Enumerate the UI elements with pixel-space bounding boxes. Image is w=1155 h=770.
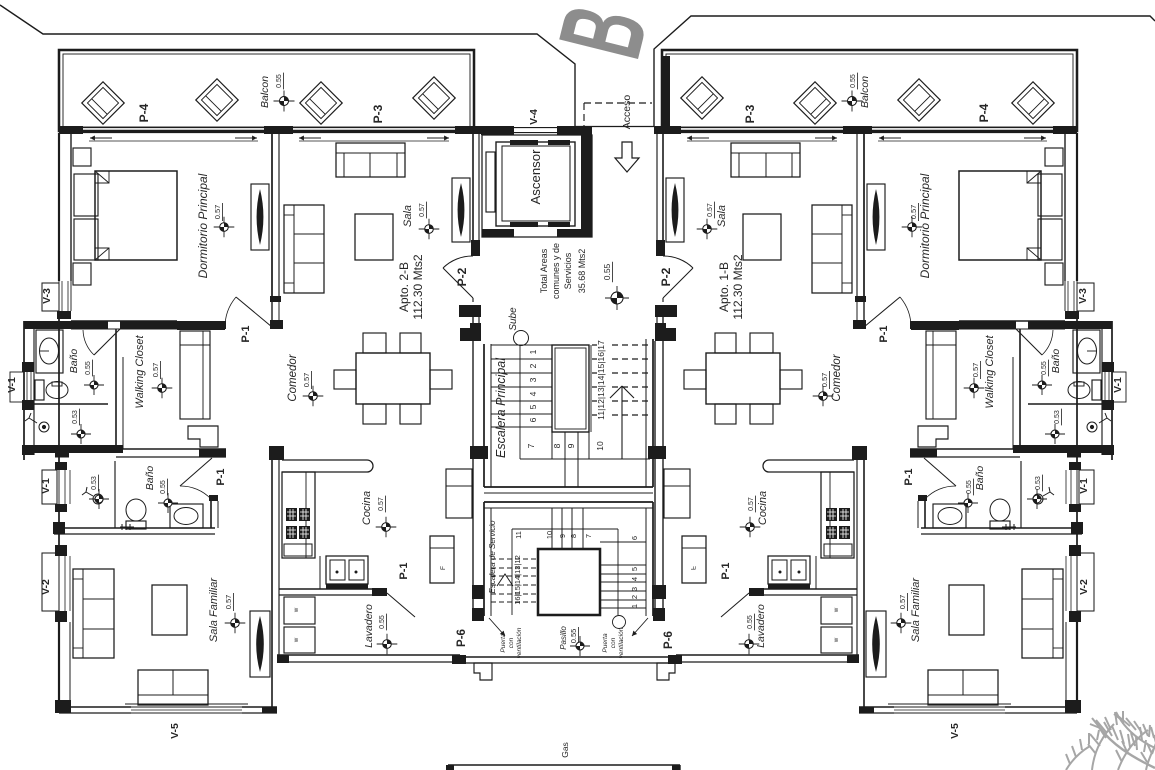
- svg-text:P-6: P-6: [456, 629, 468, 647]
- svg-text:0.55: 0.55: [569, 629, 578, 644]
- svg-text:V-3: V-3: [1077, 288, 1089, 304]
- svg-text:F: F: [440, 566, 447, 570]
- svg-text:7: 7: [584, 534, 593, 538]
- svg-text:P-3: P-3: [371, 104, 385, 123]
- svg-text:0.57: 0.57: [378, 497, 385, 511]
- svg-text:0.55: 0.55: [160, 480, 167, 494]
- svg-text:Dormitorio Principal: Dormitorio Principal: [918, 173, 932, 278]
- svg-text:0.55: 0.55: [747, 615, 754, 629]
- svg-text:V-5: V-5: [949, 723, 961, 739]
- svg-text:Balcon: Balcon: [259, 76, 271, 108]
- svg-text:11|12|13|14|15|16|17: 11|12|13|14|15|16|17: [596, 340, 606, 420]
- svg-text:w: w: [294, 637, 300, 643]
- svg-text:112.30 Mts2: 112.30 Mts2: [731, 254, 745, 319]
- svg-text:1: 1: [630, 604, 639, 608]
- svg-text:0.55: 0.55: [850, 74, 857, 88]
- svg-text:V-1: V-1: [40, 478, 52, 494]
- svg-text:Lavadero: Lavadero: [755, 604, 767, 648]
- svg-text:V-2: V-2: [40, 579, 52, 595]
- svg-text:V-3: V-3: [41, 288, 53, 304]
- svg-text:P-3: P-3: [743, 104, 757, 123]
- svg-text:Walking Closet: Walking Closet: [984, 334, 996, 408]
- svg-text:10: 10: [545, 531, 554, 539]
- svg-text:0.57: 0.57: [748, 497, 755, 511]
- svg-text:4: 4: [528, 391, 538, 396]
- svg-text:10: 10: [595, 441, 605, 451]
- svg-text:Comedor: Comedor: [831, 353, 843, 401]
- svg-text:V-4: V-4: [528, 109, 540, 125]
- svg-text:8: 8: [552, 443, 562, 448]
- svg-text:Puerta: Puerta: [602, 633, 609, 653]
- svg-text:5: 5: [528, 404, 538, 409]
- svg-text:w: w: [294, 607, 300, 613]
- svg-text:0.53: 0.53: [1035, 476, 1042, 490]
- svg-text:0.57: 0.57: [971, 363, 980, 378]
- svg-text:16|15|14|13|12: 16|15|14|13|12: [513, 555, 522, 605]
- svg-text:0.55: 0.55: [276, 74, 283, 88]
- svg-text:5: 5: [630, 567, 639, 571]
- svg-text:4: 4: [630, 577, 639, 581]
- svg-text:Cocina: Cocina: [361, 491, 373, 525]
- svg-text:P-6: P-6: [663, 631, 675, 649]
- svg-text:0.55: 0.55: [1041, 361, 1048, 375]
- svg-text:2: 2: [630, 595, 639, 599]
- svg-text:Baño: Baño: [68, 349, 80, 374]
- svg-text:Acceso: Acceso: [621, 95, 633, 130]
- svg-text:Servicios: Servicios: [563, 252, 573, 289]
- svg-text:0.53: 0.53: [91, 476, 98, 490]
- svg-text:1: 1: [528, 349, 538, 354]
- svg-text:Sala Familiar: Sala Familiar: [208, 577, 220, 643]
- svg-text:0.57: 0.57: [224, 595, 233, 610]
- svg-text:3: 3: [528, 377, 538, 382]
- svg-text:P-2: P-2: [455, 267, 469, 286]
- svg-text:Walking Closet: Walking Closet: [134, 334, 146, 408]
- svg-text:Pasillo: Pasillo: [559, 626, 568, 650]
- svg-text:0.53: 0.53: [1054, 410, 1061, 424]
- svg-text:P-4: P-4: [137, 103, 151, 122]
- svg-text:11: 11: [514, 531, 523, 539]
- svg-text:Sala Familiar: Sala Familiar: [910, 577, 922, 643]
- svg-text:Baño: Baño: [1050, 349, 1062, 374]
- svg-text:6: 6: [630, 536, 639, 540]
- svg-text:Escalera de Servicio: Escalera de Servicio: [488, 520, 497, 593]
- svg-text:con: con: [508, 637, 515, 648]
- svg-text:9: 9: [558, 534, 567, 538]
- svg-text:Total Areas: Total Areas: [539, 248, 549, 293]
- svg-text:0.57: 0.57: [213, 205, 222, 220]
- svg-text:V-1: V-1: [1112, 377, 1124, 393]
- svg-text:comunes y de: comunes y de: [551, 243, 561, 299]
- svg-text:0.57: 0.57: [302, 373, 311, 388]
- svg-text:3: 3: [630, 587, 639, 591]
- svg-text:P-2: P-2: [659, 267, 673, 286]
- svg-text:Comedor: Comedor: [287, 353, 299, 401]
- svg-text:6: 6: [528, 417, 538, 422]
- svg-text:0.57: 0.57: [419, 203, 426, 217]
- svg-text:0.57: 0.57: [707, 203, 714, 217]
- svg-text:ventilación: ventilación: [516, 627, 523, 658]
- svg-text:Sube: Sube: [508, 307, 519, 331]
- svg-text:7: 7: [526, 443, 536, 448]
- svg-text:P-1: P-1: [720, 562, 732, 579]
- svg-text:9: 9: [566, 443, 576, 448]
- svg-text:Ascensor: Ascensor: [528, 149, 543, 205]
- svg-text:P-1: P-1: [903, 468, 915, 485]
- svg-text:P-1: P-1: [215, 468, 227, 485]
- svg-text:V-1: V-1: [1078, 478, 1090, 494]
- svg-text:P-1: P-1: [398, 562, 410, 579]
- svg-text:35.68 Mts2: 35.68 Mts2: [577, 249, 587, 294]
- svg-text:Gas: Gas: [560, 742, 570, 758]
- svg-text:0.57: 0.57: [820, 373, 829, 388]
- svg-text:Apto. 2-B: Apto. 2-B: [397, 262, 411, 312]
- svg-text:0.55: 0.55: [602, 263, 612, 280]
- svg-text:Baño: Baño: [144, 466, 156, 491]
- svg-text:0.57: 0.57: [151, 363, 160, 378]
- svg-text:V-2: V-2: [1078, 579, 1090, 595]
- svg-text:Sala: Sala: [402, 205, 414, 227]
- svg-text:Lavadero: Lavadero: [363, 604, 375, 648]
- svg-text:2: 2: [528, 363, 538, 368]
- svg-text:P-1: P-1: [240, 325, 252, 342]
- svg-text:V-1: V-1: [6, 377, 18, 393]
- svg-text:w: w: [834, 607, 840, 613]
- svg-text:0.55: 0.55: [85, 361, 92, 375]
- svg-text:P-4: P-4: [977, 103, 991, 122]
- svg-text:112.30 Mts2: 112.30 Mts2: [411, 254, 425, 319]
- svg-text:Escalera Principal: Escalera Principal: [494, 357, 508, 458]
- svg-text:w: w: [834, 637, 840, 643]
- svg-text:Cocina: Cocina: [757, 491, 769, 525]
- svg-text:8: 8: [569, 534, 578, 538]
- svg-text:Apto. 1-B: Apto. 1-B: [717, 262, 731, 312]
- svg-text:Puerta: Puerta: [500, 633, 507, 653]
- svg-text:0.55: 0.55: [379, 615, 386, 629]
- svg-text:0.53: 0.53: [72, 410, 79, 424]
- svg-text:Balcon: Balcon: [859, 76, 871, 108]
- svg-text:Baño: Baño: [974, 466, 986, 491]
- svg-text:Sala: Sala: [716, 205, 728, 227]
- svg-text:0.57: 0.57: [909, 205, 918, 220]
- svg-text:0.55: 0.55: [966, 480, 973, 494]
- svg-text:P-1: P-1: [878, 325, 890, 342]
- svg-text:con: con: [610, 637, 617, 648]
- svg-text:ventilación: ventilación: [618, 627, 625, 658]
- svg-text:V-5: V-5: [169, 723, 181, 739]
- svg-text:Dormitorio Principal: Dormitorio Principal: [196, 173, 210, 278]
- svg-text:0.57: 0.57: [898, 595, 907, 610]
